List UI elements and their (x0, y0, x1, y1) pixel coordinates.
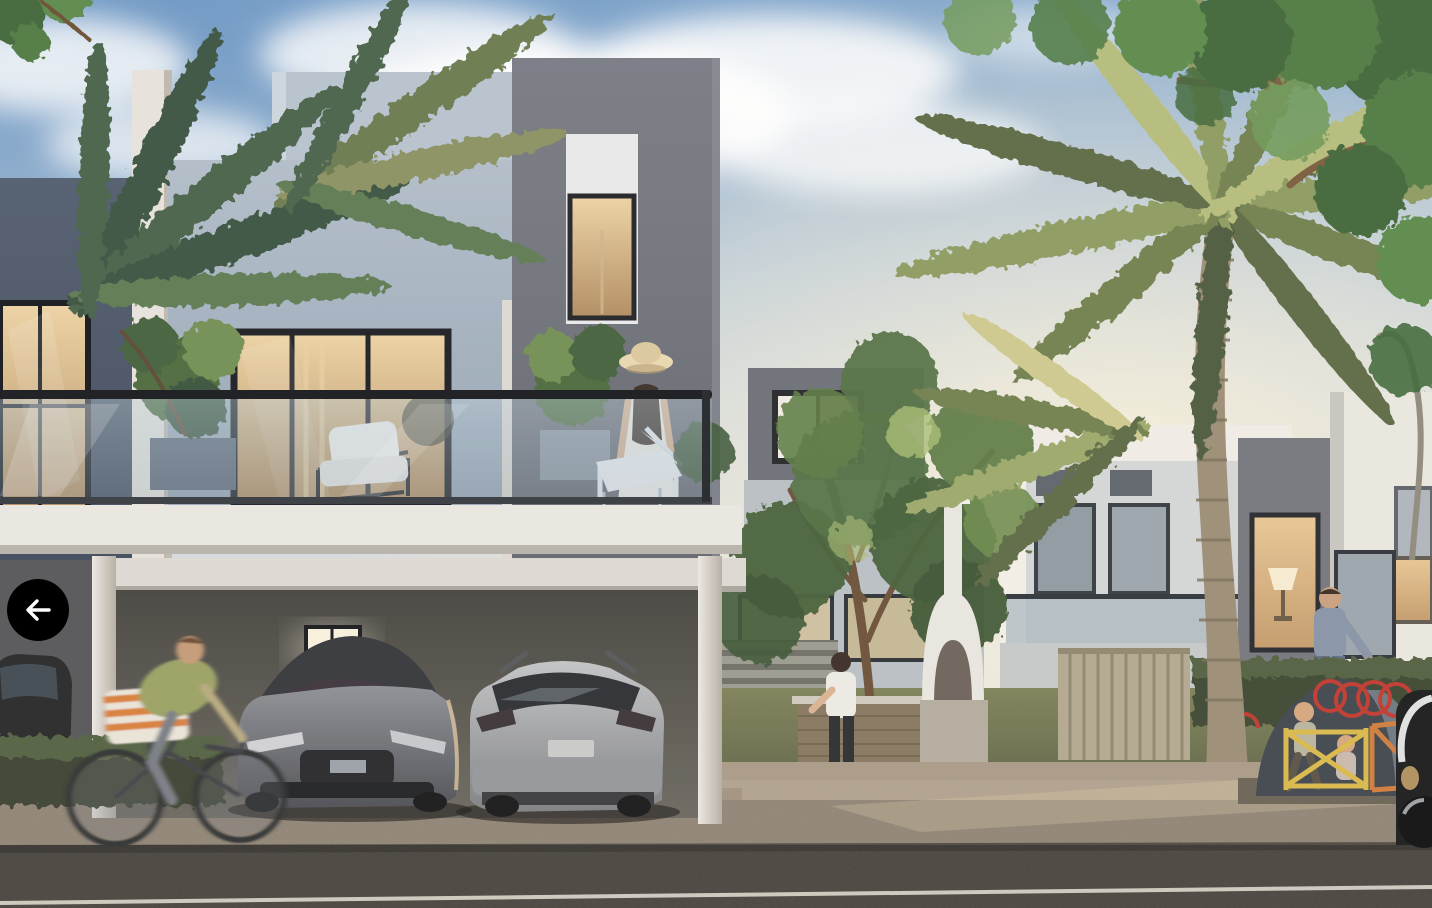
property-render-image (0, 0, 1432, 908)
back-button[interactable] (7, 579, 69, 641)
warm-film (0, 0, 1432, 908)
photo-viewer (0, 0, 1432, 908)
arrow-left-icon (23, 595, 53, 625)
